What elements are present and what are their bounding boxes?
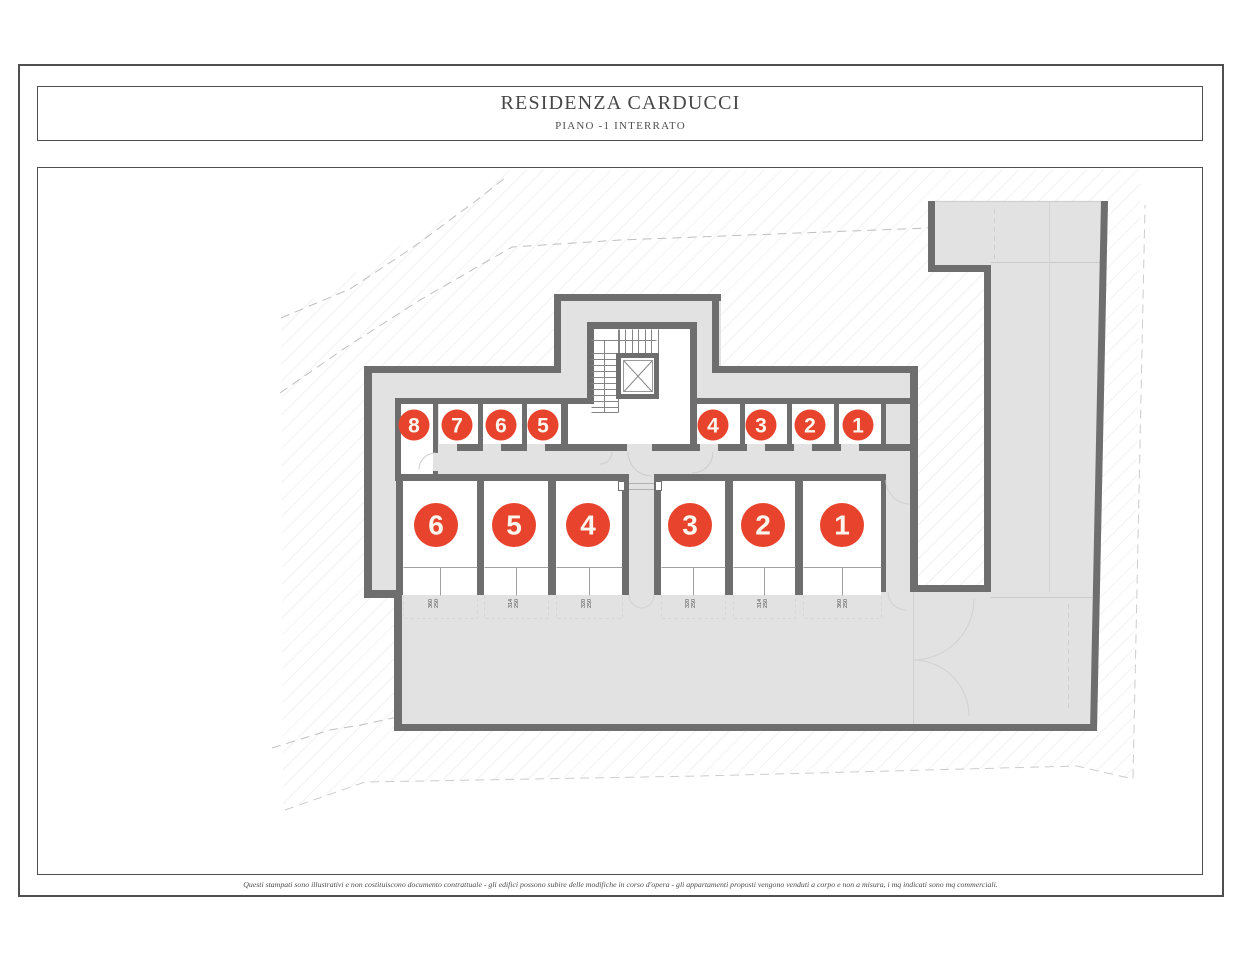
svg-text:320250: 320250 — [581, 599, 593, 608]
svg-text:360250: 360250 — [837, 599, 849, 608]
svg-text:320250: 320250 — [685, 599, 697, 608]
svg-text:3: 3 — [755, 415, 767, 438]
svg-text:4: 4 — [580, 510, 596, 541]
svg-text:3: 3 — [682, 510, 698, 541]
svg-text:2: 2 — [755, 510, 771, 541]
svg-text:4: 4 — [707, 415, 719, 438]
svg-text:314250: 314250 — [508, 599, 520, 608]
svg-text:6: 6 — [495, 415, 507, 438]
svg-text:5: 5 — [506, 510, 522, 541]
svg-text:360250: 360250 — [428, 599, 440, 608]
svg-text:6: 6 — [428, 510, 444, 541]
svg-text:314250: 314250 — [757, 599, 769, 608]
svg-text:8: 8 — [408, 415, 420, 438]
svg-text:1: 1 — [852, 415, 864, 438]
svg-text:7: 7 — [451, 415, 463, 438]
svg-text:1: 1 — [834, 510, 850, 541]
svg-text:5: 5 — [537, 415, 549, 438]
svg-text:2: 2 — [804, 415, 816, 438]
